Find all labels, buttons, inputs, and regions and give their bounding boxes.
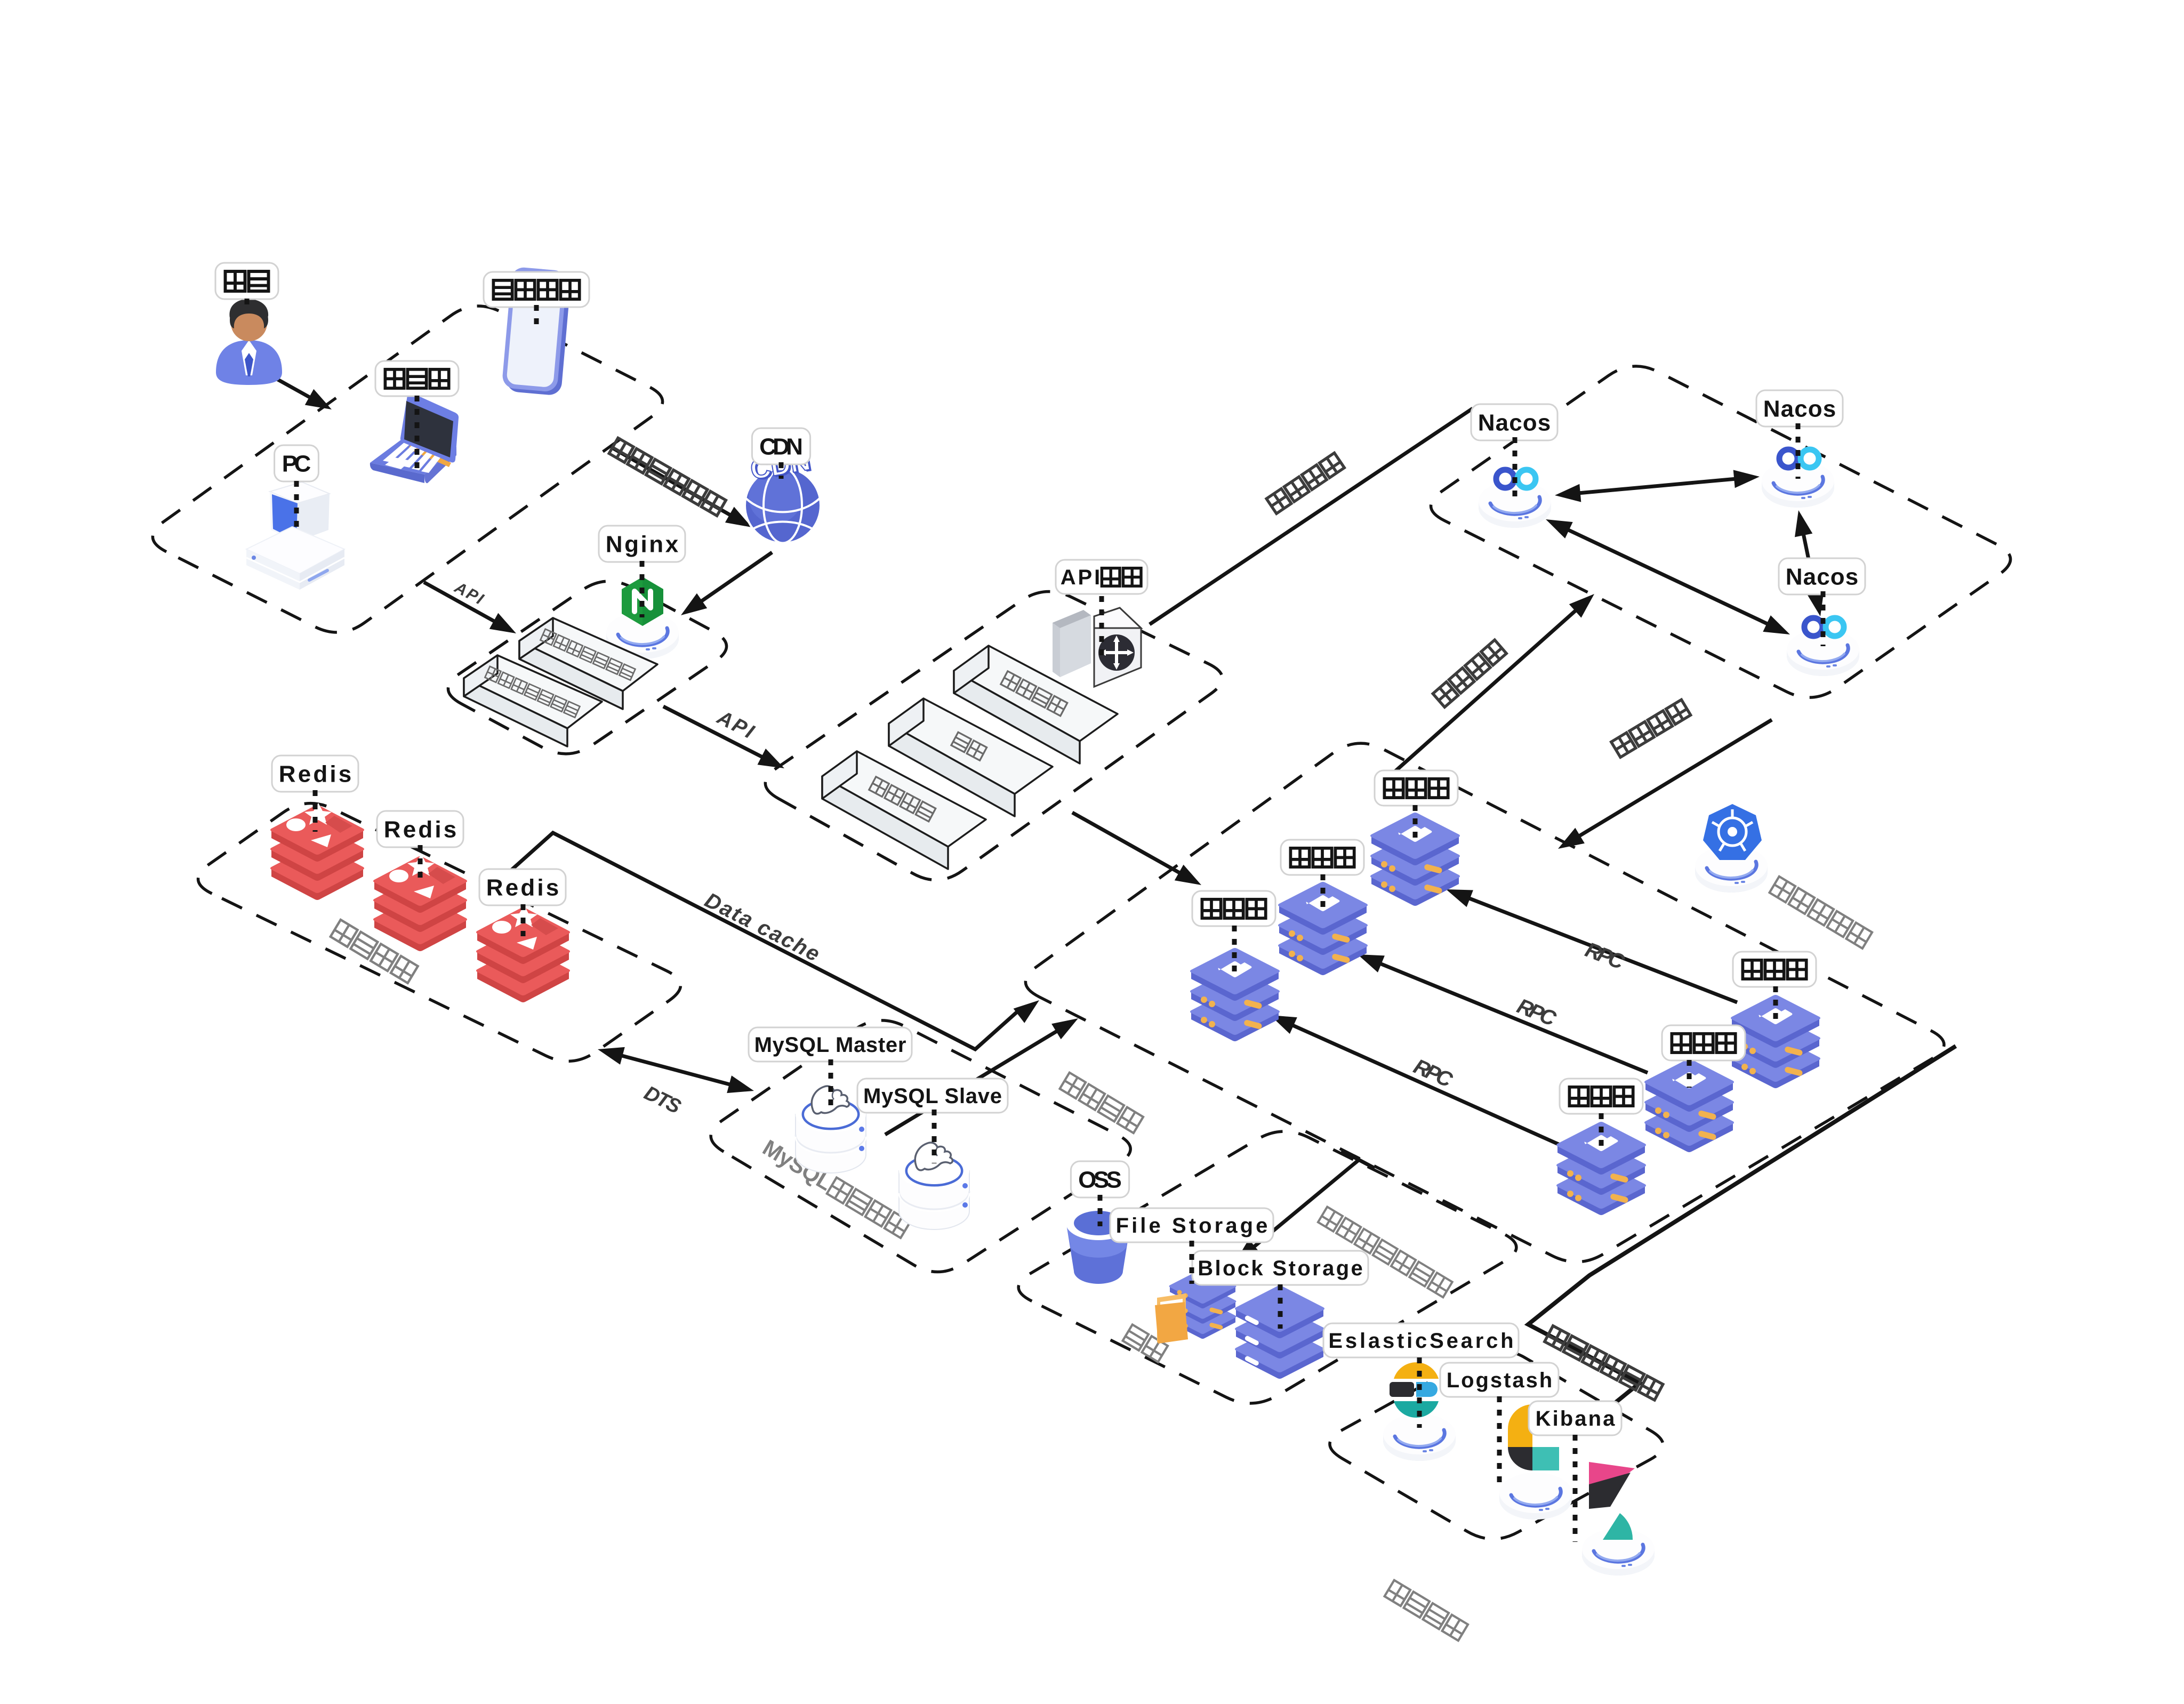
svg-text:Nacos: Nacos (1786, 564, 1858, 590)
svg-text:EslasticSearch: EslasticSearch (1328, 1329, 1513, 1353)
svg-text:Kibana: Kibana (1536, 1407, 1616, 1430)
svg-text:API: API (1061, 566, 1100, 589)
svg-text:Logstash: Logstash (1447, 1369, 1552, 1392)
svg-text:CDN: CDN (759, 434, 803, 460)
svg-text:Nacos: Nacos (1478, 410, 1551, 436)
svg-text:MySQL Slave: MySQL Slave (863, 1084, 1002, 1108)
svg-text:Block Storage: Block Storage (1198, 1257, 1363, 1280)
svg-text:Redis: Redis (384, 817, 456, 843)
svg-text:Nacos: Nacos (1763, 396, 1836, 422)
svg-text:PC: PC (282, 451, 311, 477)
svg-text:Redis: Redis (279, 761, 351, 787)
svg-text:Redis: Redis (486, 875, 559, 901)
svg-text:Nginx: Nginx (606, 532, 679, 558)
svg-text:OSS: OSS (1078, 1167, 1122, 1193)
svg-text:MySQL Master: MySQL Master (754, 1033, 906, 1057)
